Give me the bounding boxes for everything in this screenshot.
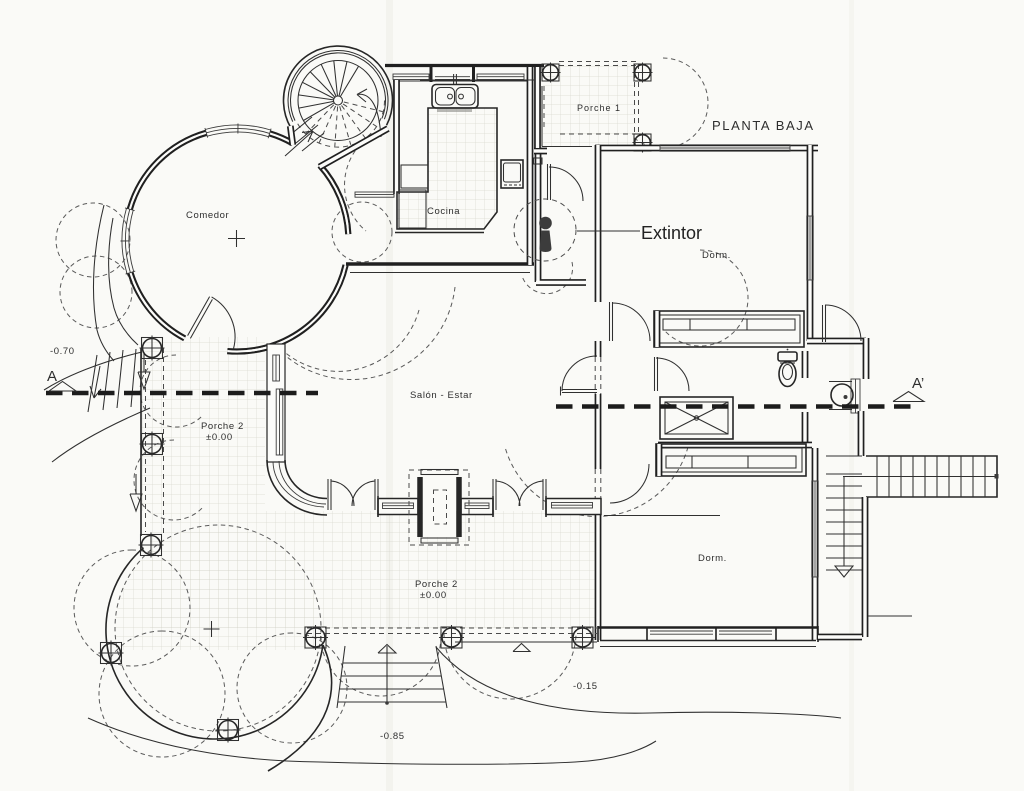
svg-text:Dorm.: Dorm.: [698, 553, 727, 564]
svg-text:±0.00: ±0.00: [420, 590, 447, 601]
svg-text:-0.85: -0.85: [380, 731, 405, 742]
svg-text:Dorm.: Dorm.: [702, 250, 731, 261]
svg-text:Extintor: Extintor: [641, 223, 702, 243]
svg-text:Cocina: Cocina: [427, 206, 460, 217]
svg-text:Salón - Estar: Salón - Estar: [410, 390, 473, 401]
svg-text:PLANTA BAJA: PLANTA BAJA: [712, 118, 815, 133]
svg-text:Porche 2: Porche 2: [415, 579, 458, 590]
svg-text:A: A: [47, 368, 57, 385]
svg-text:Porche 2: Porche 2: [201, 421, 244, 432]
svg-text:-0.70: -0.70: [50, 346, 75, 357]
svg-text:A’: A’: [912, 375, 924, 392]
svg-text:±0.00: ±0.00: [206, 432, 233, 443]
svg-text:-0.15: -0.15: [573, 681, 598, 692]
svg-text:Comedor: Comedor: [186, 210, 229, 221]
svg-text:Porche 1: Porche 1: [577, 103, 621, 113]
